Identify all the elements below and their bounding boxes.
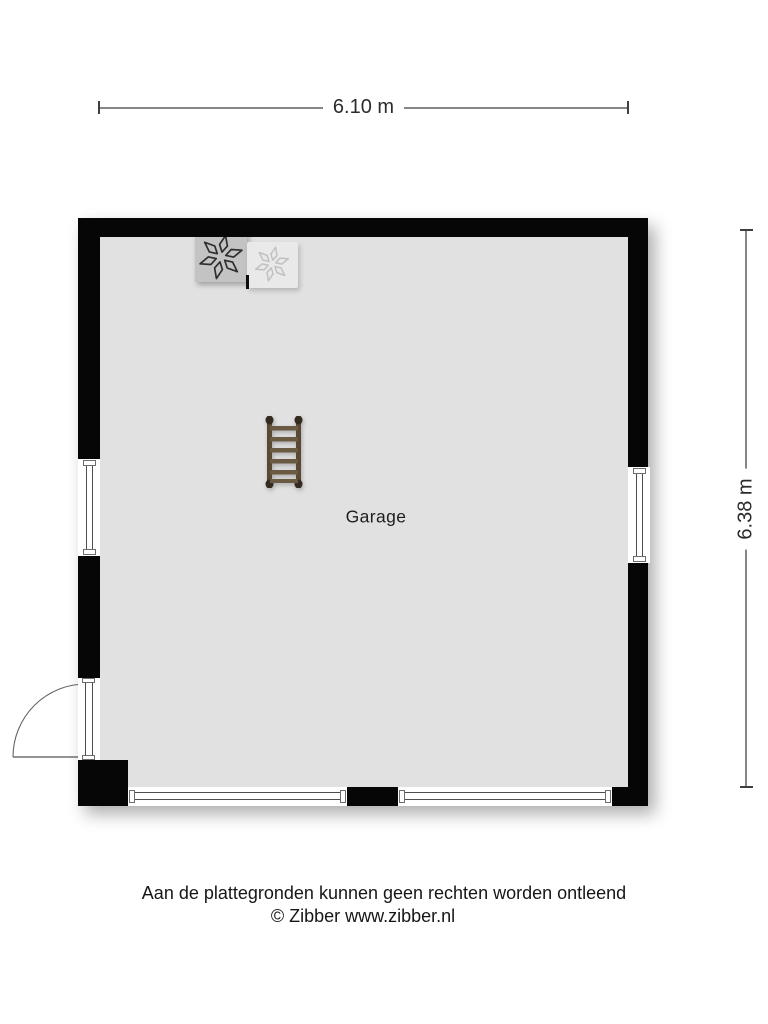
window-frame-cap bbox=[83, 549, 96, 555]
window-frame-cap bbox=[399, 790, 405, 803]
window-frame-cap bbox=[129, 790, 135, 803]
fan-icon bbox=[195, 230, 247, 282]
window-frame-cap bbox=[340, 790, 346, 803]
wall-left-middle bbox=[78, 556, 100, 678]
wall-left-upper bbox=[78, 218, 100, 459]
window-glass bbox=[134, 792, 341, 800]
window-bottom-left bbox=[128, 787, 347, 806]
window-frame-cap bbox=[605, 790, 611, 803]
fan-icon bbox=[247, 242, 298, 288]
door-opening bbox=[78, 678, 100, 760]
window-glass bbox=[86, 465, 93, 550]
width-dimension-label: 6.10 m bbox=[323, 96, 404, 119]
window-bottom-right bbox=[398, 787, 612, 806]
window-left-wall bbox=[78, 459, 100, 556]
fan-unit-box bbox=[195, 230, 247, 282]
wall-corner-bottom-left bbox=[78, 760, 128, 806]
footer-copyright: © Zibber www.zibber.nl bbox=[0, 906, 726, 927]
wall-top bbox=[78, 218, 648, 237]
height-dimension-tick-bottom bbox=[740, 786, 753, 788]
floor-plan: Garage bbox=[78, 218, 648, 806]
ladder-icon bbox=[264, 416, 304, 488]
window-frame-cap bbox=[633, 556, 646, 562]
window-glass bbox=[636, 473, 643, 557]
door-frame-cap bbox=[82, 755, 95, 760]
room-label: Garage bbox=[346, 507, 407, 528]
window-right-wall bbox=[628, 467, 650, 563]
ventilation-unit-box bbox=[247, 242, 298, 288]
width-dimension: 6.10 m bbox=[99, 96, 628, 119]
height-dimension-tick-top bbox=[740, 229, 753, 231]
height-dimension-label: 6.38 m bbox=[735, 468, 758, 549]
pipe-mark bbox=[246, 275, 249, 289]
wall-bottom-pier bbox=[347, 787, 398, 806]
floor-plan-page: 6.10 m 6.38 m bbox=[0, 0, 768, 1024]
window-frame-cap bbox=[633, 468, 646, 474]
window-frame-cap bbox=[83, 460, 96, 466]
wall-right-upper bbox=[628, 218, 648, 467]
door-leaf bbox=[85, 683, 93, 756]
window-glass bbox=[404, 792, 606, 800]
footer-disclaimer: Aan de plattegronden kunnen geen rechten… bbox=[0, 883, 768, 904]
wall-right-lower bbox=[628, 563, 648, 806]
